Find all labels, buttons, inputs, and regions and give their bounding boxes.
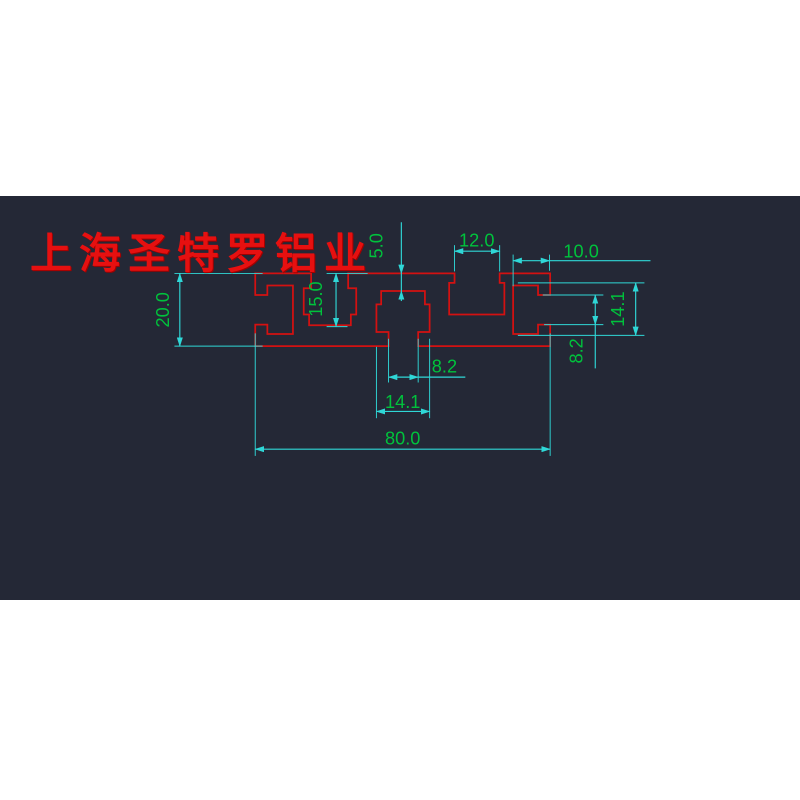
cad-screenshot: 上海圣特罗铝业	[0, 0, 800, 800]
dim-right-slot-depth: 10.0	[563, 241, 598, 261]
dim-top-slot-width: 12.0	[459, 231, 494, 251]
dim-profile-width: 80.0	[385, 428, 420, 448]
dim-bottom-mouth-width: 8.2	[432, 356, 457, 376]
cad-viewport: 上海圣特罗铝业	[0, 196, 800, 600]
profile-outline	[255, 273, 550, 346]
dim-right-mouth-height: 8.2	[566, 338, 586, 363]
dim-bottom-cavity-width: 14.1	[385, 392, 420, 412]
company-watermark: 上海圣特罗铝业	[30, 220, 373, 281]
dim-right-cavity-height: 14.1	[608, 291, 628, 326]
dim-profile-height: 20.0	[153, 292, 173, 327]
dim-slot-depth: 15.0	[306, 281, 326, 316]
